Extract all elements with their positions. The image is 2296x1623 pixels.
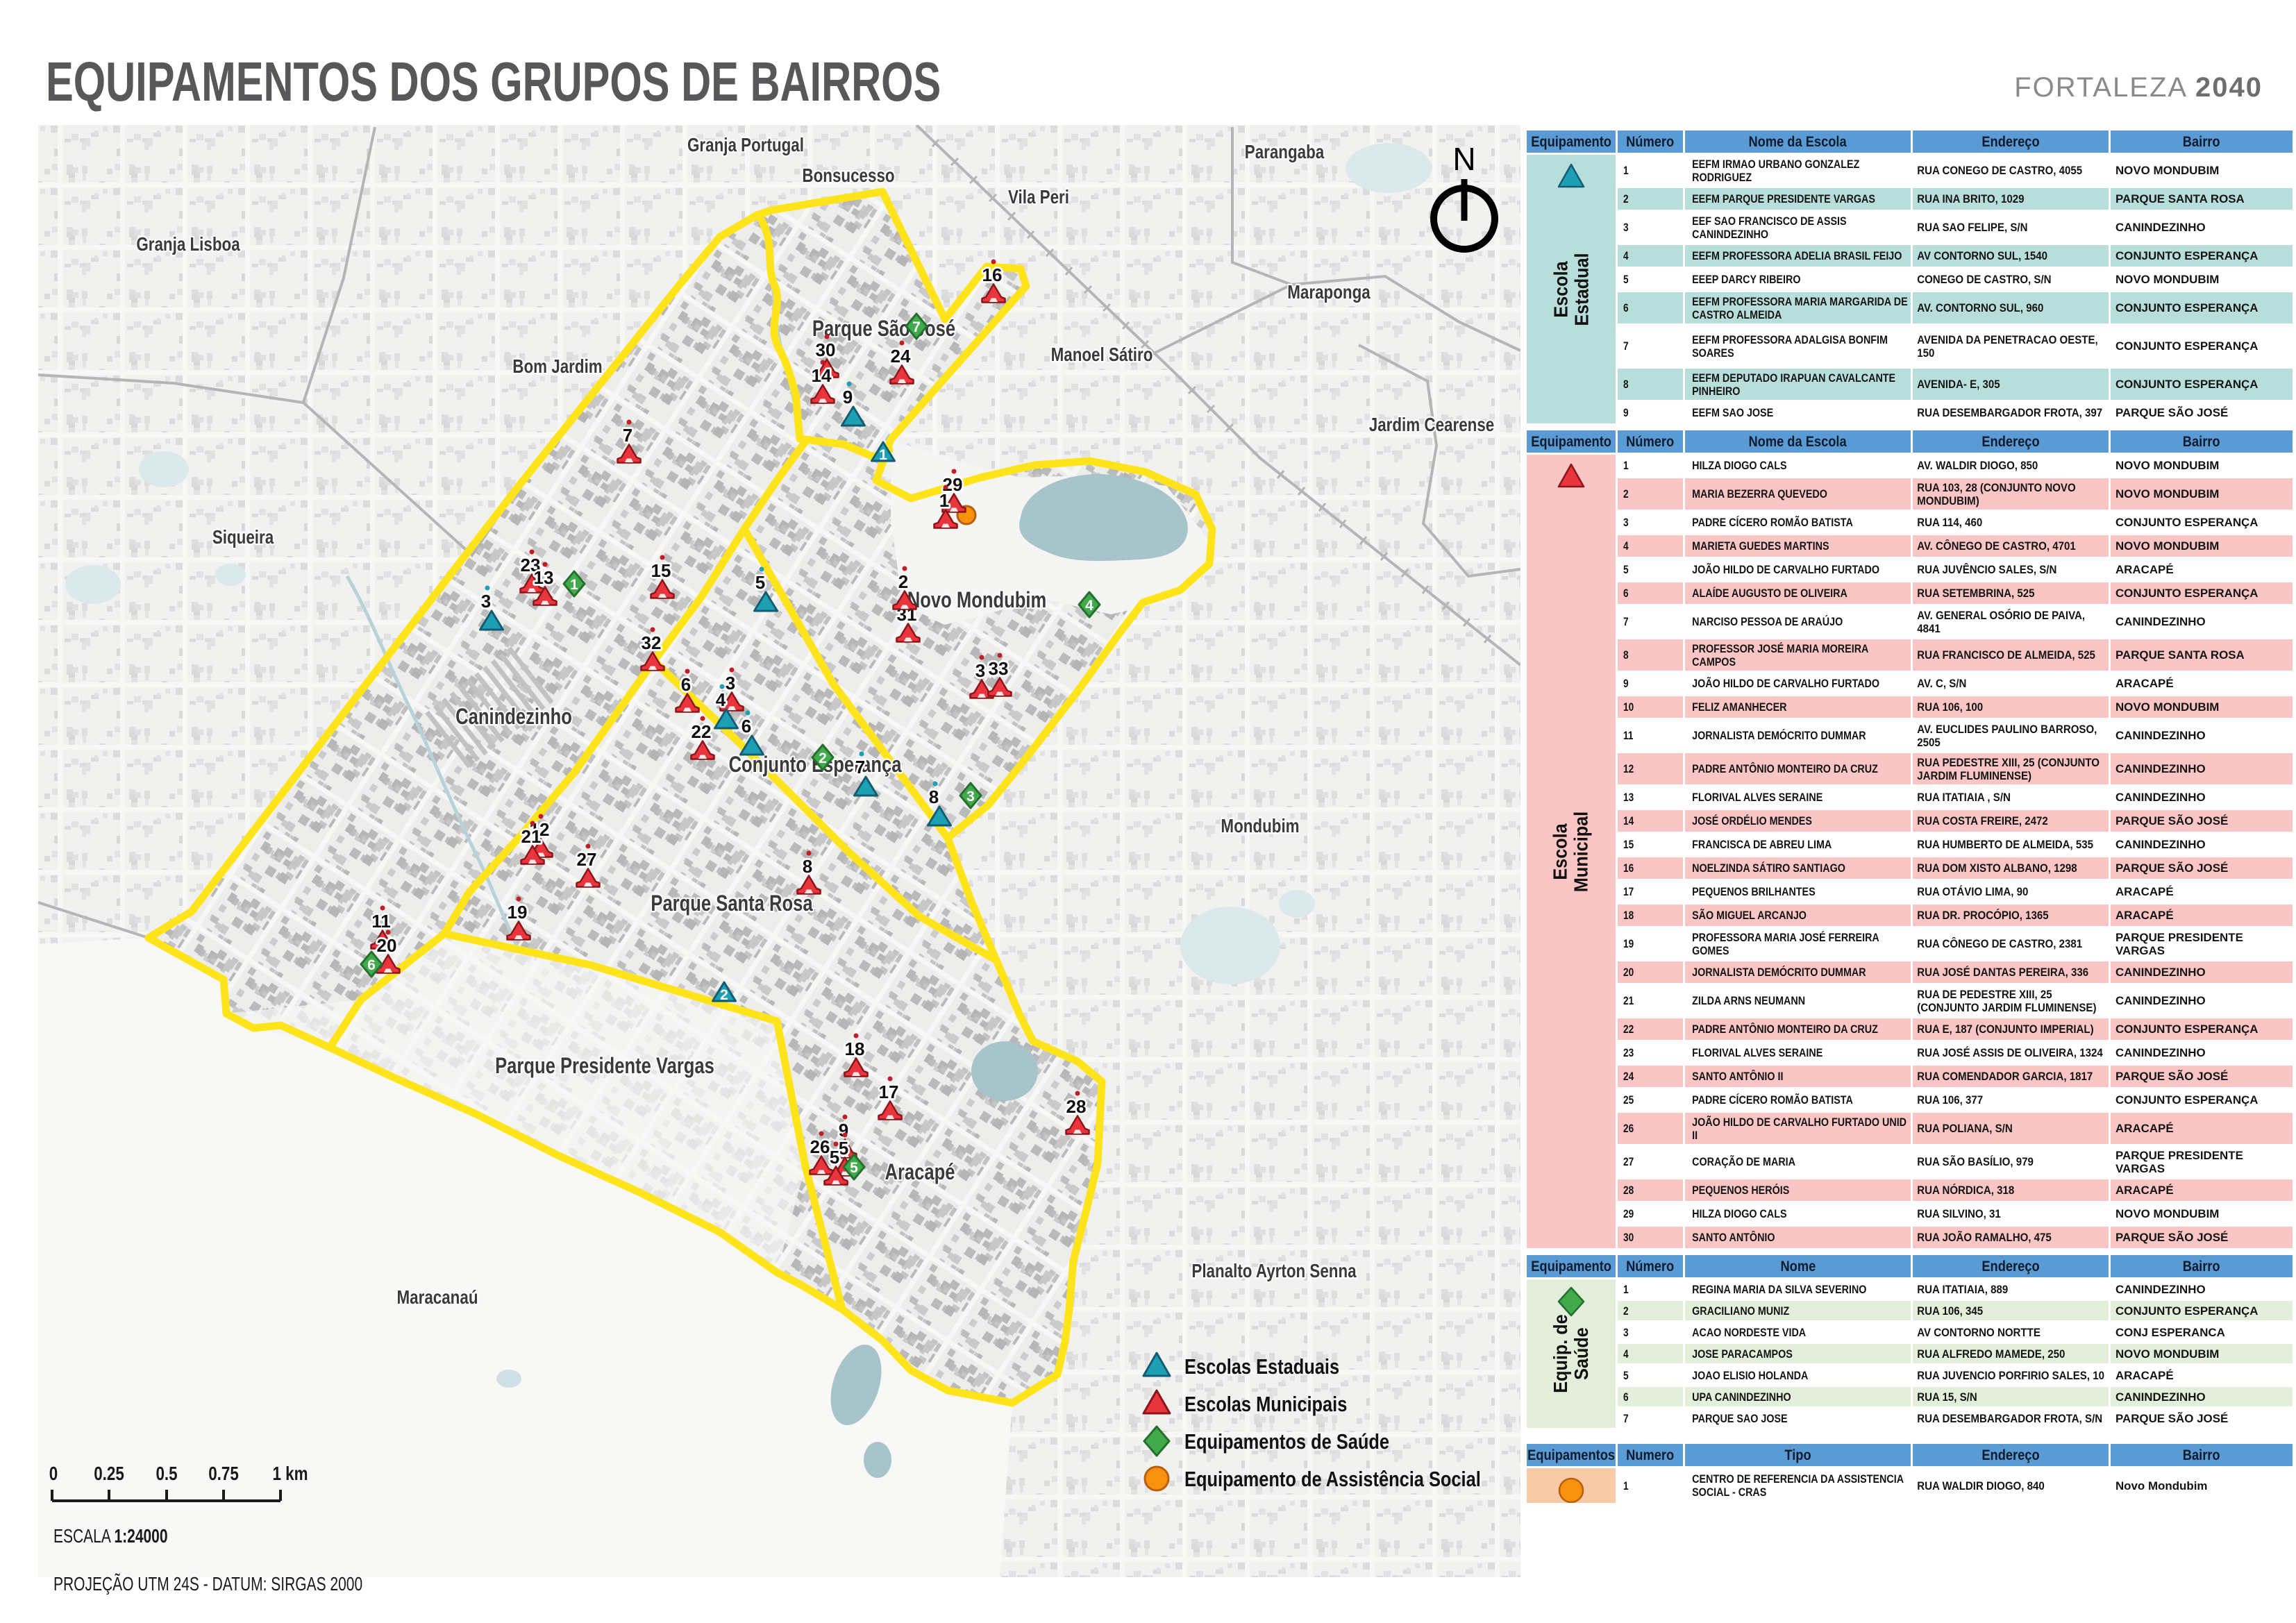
svg-text:ESCALA 1:24000: ESCALA 1:24000 (53, 1526, 168, 1547)
svg-text:Novo Mondubim: Novo Mondubim (907, 588, 1046, 612)
svg-text:21: 21 (521, 826, 542, 847)
svg-text:Parangaba: Parangaba (1245, 142, 1325, 163)
svg-text:5: 5 (839, 1138, 848, 1159)
svg-text:Parque São José: Parque São José (812, 317, 955, 341)
svg-text:Escolas Estaduais: Escolas Estaduais (1184, 1355, 1339, 1379)
svg-text:1: 1 (879, 447, 887, 463)
svg-text:5: 5 (830, 1147, 839, 1168)
svg-text:Siqueira: Siqueira (212, 527, 274, 548)
svg-text:Maraponga: Maraponga (1287, 282, 1371, 303)
svg-text:16: 16 (982, 264, 1003, 285)
svg-text:Bom Jardim: Bom Jardim (512, 356, 602, 378)
svg-text:7: 7 (623, 425, 632, 446)
svg-text:15: 15 (651, 560, 671, 581)
svg-text:Maracanaú: Maracanaú (397, 1287, 478, 1309)
svg-text:26: 26 (810, 1136, 830, 1157)
svg-text:8: 8 (929, 787, 939, 807)
svg-text:14: 14 (812, 365, 832, 386)
svg-text:28: 28 (1066, 1096, 1087, 1117)
svg-text:11: 11 (371, 911, 391, 932)
svg-text:Granja Portugal: Granja Portugal (687, 135, 804, 156)
svg-text:2: 2 (819, 750, 827, 766)
svg-text:6: 6 (741, 716, 751, 737)
svg-text:Canindezinho: Canindezinho (455, 705, 572, 729)
svg-text:PROJEÇÃO UTM 24S - DATUM: SIRG: PROJEÇÃO UTM 24S - DATUM: SIRGAS 2000 (53, 1574, 362, 1595)
svg-text:22: 22 (692, 721, 712, 742)
svg-text:Aracapé: Aracapé (885, 1160, 955, 1184)
svg-text:24: 24 (891, 346, 911, 367)
svg-text:Manoel Sátiro: Manoel Sátiro (1051, 344, 1153, 366)
svg-text:0: 0 (49, 1463, 58, 1485)
svg-text:N: N (1452, 141, 1475, 177)
svg-text:19: 19 (508, 902, 528, 923)
svg-text:Jardim Cearense: Jardim Cearense (1369, 414, 1494, 436)
svg-text:1: 1 (570, 577, 578, 593)
svg-text:Planalto Ayrton Senna: Planalto Ayrton Senna (1191, 1261, 1357, 1282)
svg-text:20: 20 (377, 935, 397, 956)
svg-text:Equipamento de Assistência Soc: Equipamento de Assistência Social (1184, 1468, 1481, 1492)
svg-text:0.5: 0.5 (156, 1463, 177, 1485)
svg-text:Parque Santa Rosa: Parque Santa Rosa (651, 891, 813, 916)
svg-text:Escolas Municipais: Escolas Municipais (1184, 1393, 1347, 1417)
svg-text:Equipamentos de Saúde: Equipamentos de Saúde (1184, 1430, 1389, 1454)
svg-text:5: 5 (755, 572, 765, 593)
svg-text:4: 4 (1085, 598, 1093, 614)
svg-text:7: 7 (855, 757, 865, 777)
svg-text:32: 32 (642, 632, 662, 653)
svg-text:18: 18 (845, 1038, 865, 1059)
svg-text:0.25: 0.25 (94, 1463, 124, 1485)
svg-text:2: 2 (898, 571, 908, 592)
svg-text:6: 6 (681, 674, 691, 695)
svg-text:4: 4 (716, 689, 726, 710)
svg-text:17: 17 (879, 1082, 899, 1102)
svg-text:Parque Presidente Vargas: Parque Presidente Vargas (495, 1054, 714, 1078)
svg-text:9: 9 (843, 387, 853, 407)
svg-text:Mondubim: Mondubim (1221, 816, 1299, 837)
svg-text:13: 13 (534, 567, 554, 588)
svg-text:27: 27 (577, 849, 597, 870)
svg-text:6: 6 (367, 957, 376, 973)
svg-text:5: 5 (850, 1160, 858, 1176)
svg-text:33: 33 (989, 658, 1009, 679)
svg-text:7: 7 (912, 319, 921, 335)
svg-text:Bonsucesso: Bonsucesso (802, 165, 894, 187)
svg-text:3: 3 (726, 673, 735, 693)
svg-text:2: 2 (720, 987, 728, 1003)
svg-text:3: 3 (975, 660, 985, 681)
svg-text:1 km: 1 km (272, 1463, 308, 1485)
svg-text:3: 3 (481, 591, 491, 612)
svg-text:Vila Peri: Vila Peri (1008, 187, 1069, 208)
svg-text:0.75: 0.75 (208, 1463, 239, 1485)
svg-text:3: 3 (966, 789, 975, 805)
svg-text:1: 1 (939, 490, 949, 511)
svg-text:Granja Lisboa: Granja Lisboa (136, 234, 240, 255)
svg-text:8: 8 (803, 856, 812, 877)
svg-text:30: 30 (816, 339, 836, 360)
